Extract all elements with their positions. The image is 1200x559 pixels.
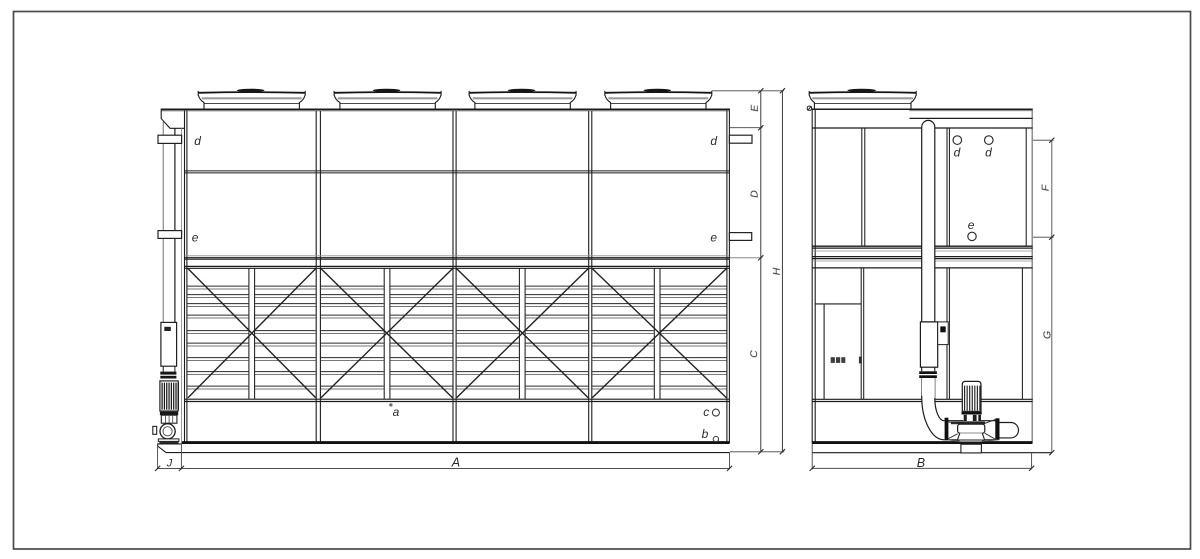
svg-text:J: J (166, 458, 173, 470)
svg-text:D: D (749, 190, 761, 198)
svg-text:G: G (1041, 331, 1053, 339)
svg-text:d: d (954, 145, 961, 159)
svg-text:a: a (393, 405, 400, 419)
svg-text:e: e (710, 231, 717, 245)
svg-text:H: H (771, 267, 783, 275)
svg-text:d: d (985, 145, 992, 159)
svg-text:e: e (192, 231, 199, 245)
svg-text:b: b (702, 427, 709, 441)
svg-text:F: F (1040, 184, 1052, 191)
svg-text:B: B (917, 456, 925, 470)
svg-text:A: A (451, 455, 460, 469)
svg-text:d: d (710, 134, 717, 148)
svg-text:E: E (749, 104, 761, 112)
svg-text:e: e (968, 218, 975, 232)
svg-text:c: c (703, 405, 709, 419)
svg-text:d: d (194, 134, 201, 148)
svg-text:C: C (748, 350, 760, 358)
